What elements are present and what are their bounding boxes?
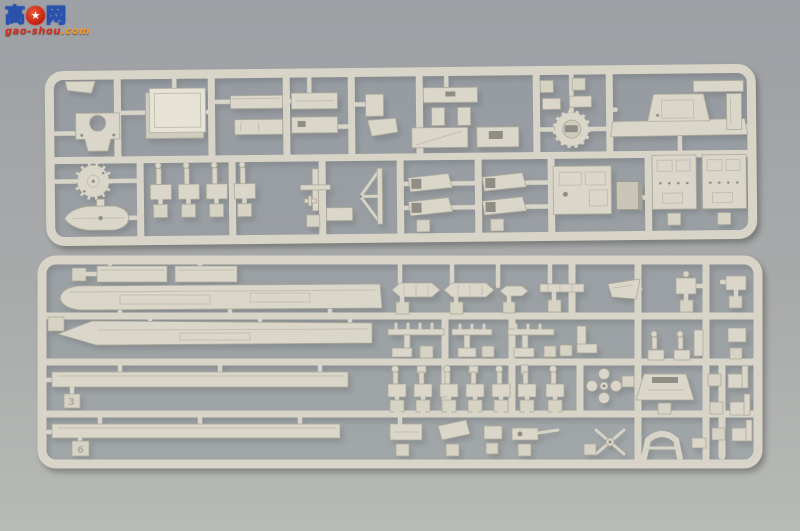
part-detail-plate	[553, 166, 611, 215]
watermark-char-left: 高	[5, 5, 25, 25]
part-deckhouse-strip-b	[175, 266, 237, 282]
part-hull-side-long	[60, 284, 382, 310]
part-deckhouse-strip-a	[97, 266, 167, 282]
part-number-tag-3: 3	[68, 397, 75, 408]
watermark-char-right: 网	[46, 5, 66, 25]
part-deckhouse-block	[145, 88, 206, 139]
sprue-bottom: 3 6	[42, 260, 758, 464]
watermark-logo: 高 ★ 网 gao-shou.com	[5, 5, 90, 37]
part-dark-box	[616, 181, 642, 211]
sprue-scene: 3 6	[0, 0, 800, 531]
part-number-tag-6: 6	[77, 445, 84, 456]
part-sloped-plates	[412, 127, 519, 148]
gear-logo-icon: ★	[26, 6, 45, 25]
watermark-url: gao-shou.com	[5, 27, 90, 37]
watermark-url-main: gao-shou	[5, 26, 61, 37]
sprue-top	[49, 68, 753, 241]
part-turret-ring	[555, 112, 589, 146]
photo-model-sprues: 3 6	[0, 0, 800, 531]
star-icon: ★	[31, 10, 41, 21]
watermark-row: 高 ★ 网	[5, 5, 90, 25]
watermark-url-tld: .com	[61, 26, 90, 37]
